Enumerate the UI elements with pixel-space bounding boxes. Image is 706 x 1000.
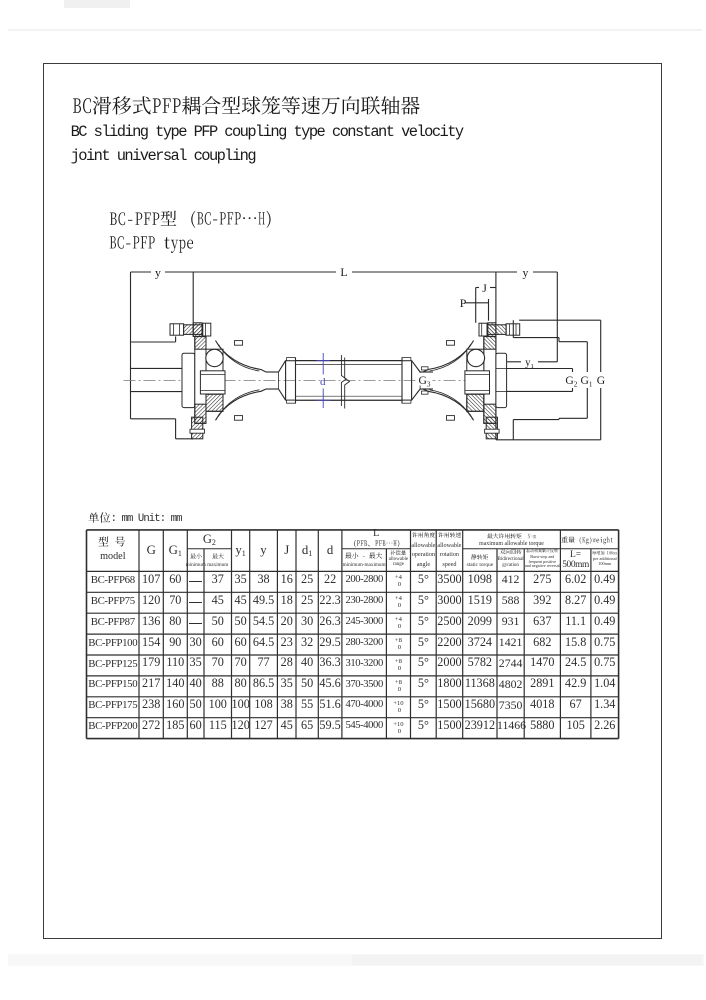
svg-text:y: y — [155, 265, 161, 279]
svg-text:G: G — [597, 374, 606, 387]
svg-text:G2: G2 — [565, 374, 577, 389]
svg-text:d: d — [320, 376, 326, 388]
svg-text:G1: G1 — [581, 374, 593, 389]
svg-text:y: y — [523, 265, 529, 279]
svg-text:y1: y1 — [525, 357, 534, 371]
svg-text:J: J — [482, 281, 487, 295]
svg-text:L: L — [340, 265, 347, 279]
svg-text:P: P — [460, 296, 467, 310]
